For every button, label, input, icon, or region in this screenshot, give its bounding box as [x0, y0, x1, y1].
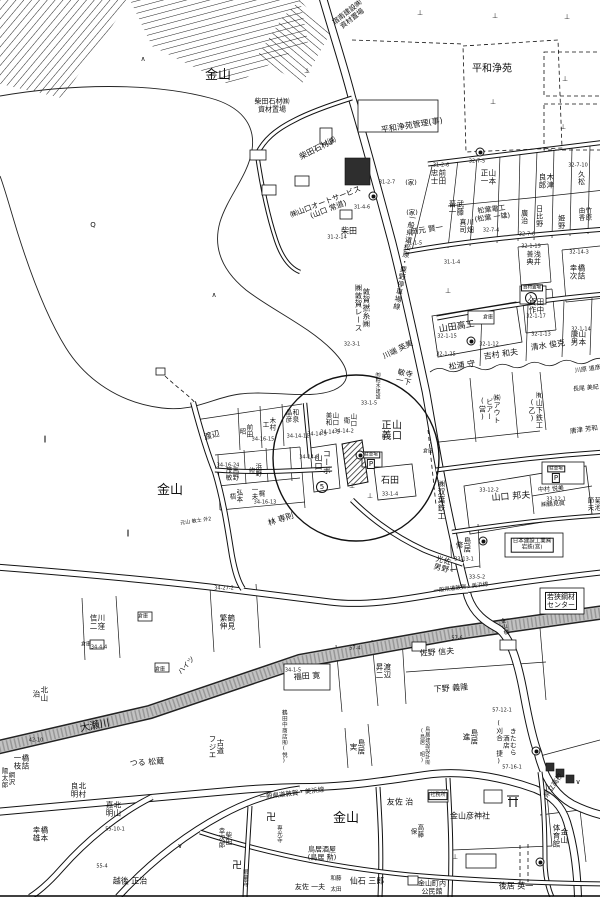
entrance-icon: 入	[525, 292, 537, 304]
map-label: つる 松蔵	[129, 757, 164, 768]
parcel-number: 34-1-5	[285, 668, 301, 673]
map-label: 島居 実	[349, 739, 365, 755]
map-label: 松浦 守	[448, 360, 475, 372]
map-label: 寺下 敏一	[395, 368, 414, 387]
route-marker-icon	[356, 451, 365, 460]
map-label: 高藤 保	[409, 824, 423, 838]
map-label: 後居 英一	[499, 883, 534, 892]
route-marker-icon	[479, 537, 488, 546]
parcel-number: 32-1-17	[526, 314, 546, 319]
map-symbol: ⊥	[445, 288, 451, 296]
map-label: 山口 美和	[324, 412, 338, 426]
map-label: 橋詰 一枝	[13, 754, 29, 770]
parcel-number: 33-12-1	[546, 497, 566, 502]
map-label: 日本建設工業㈱ 岩鉄(営)	[511, 538, 554, 553]
map-label: ㈱双葉鉄工	[437, 480, 445, 520]
map-label: ㈲柏木建設	[374, 372, 379, 400]
map-label: 大瀬川	[79, 719, 111, 735]
parcel-number: 34-16-13	[254, 500, 277, 505]
map-label: 清水 俊克	[530, 339, 565, 352]
parcel-number: 34-14-11	[287, 434, 310, 439]
parcel-number: 32-1-12	[479, 342, 499, 347]
temple-icon: 卍	[266, 814, 276, 825]
map-label: 菊池 節夫	[586, 497, 600, 511]
parcel-number: 31-4-6	[354, 205, 370, 210]
map-label: 前田 昭	[238, 424, 252, 438]
map-label: 倉庫	[155, 667, 165, 672]
map-label: 唐津 芳和	[570, 425, 599, 435]
parcel-number: 32-3-1	[344, 342, 360, 347]
map-symbol: ⊥	[492, 13, 498, 21]
map-label: 石田	[381, 477, 399, 487]
parcel-number: 31-1-4	[444, 260, 460, 265]
map-label: 網沢 陽太郎	[0, 768, 14, 789]
map-label: 日比野	[535, 205, 542, 228]
map-label: 弘本 梧	[228, 489, 242, 503]
map-label: 鶴田中商店㈲(悦)	[280, 710, 286, 765]
map-label: 吉村 和夫	[483, 348, 518, 361]
map-symbol: ⊥	[304, 68, 310, 76]
map-label: 梶 一夫	[250, 486, 264, 500]
map-symbol: ⊥	[349, 483, 355, 491]
map-label: 前田 忠士	[430, 169, 446, 185]
map-label: 姫野	[557, 215, 564, 230]
map-label: 島居 進	[462, 729, 478, 745]
map-symbol: ∨	[177, 843, 182, 851]
temple-icon: 卍	[232, 862, 242, 873]
map-label: ㈱アウト ビアー (営)	[478, 394, 500, 424]
parcel-number: 34-4-4	[91, 645, 107, 650]
map-label: 川窪 信二	[89, 614, 105, 630]
parcel-number: 55-4	[96, 864, 107, 869]
map-label: 敦賀撚糸㈱ ㈱敦賀レース	[354, 284, 370, 332]
map-label: 北村 良明	[70, 782, 86, 798]
parcel-number: 32-1-25	[436, 352, 456, 357]
map-symbol: ⊥	[564, 14, 570, 22]
map-label: 柴田 幸次郎	[217, 828, 231, 849]
map-label: コーポ 山口	[314, 449, 331, 475]
map-symbol: ∥	[126, 530, 130, 538]
map-label: 仙石 三郎	[350, 878, 385, 887]
parcel-number: 32-1-19	[521, 244, 541, 249]
map-symbol: ⊥	[367, 493, 373, 501]
route-marker-icon	[369, 192, 378, 201]
map-label: (家)	[405, 179, 417, 186]
parcel-number: 57-16-1	[502, 765, 522, 770]
map-canvas: 宿南建設㈱ 資材置場金山平和浄苑平和浄苑管理(事)柴田石材㈱ 資材置場柴田石材㈱…	[0, 0, 600, 897]
map-label: 橋本 幸雄	[32, 826, 48, 842]
route-marker-icon	[536, 858, 545, 867]
parcel-number: 33-12-2	[479, 488, 499, 493]
map-label: 廣治	[520, 210, 527, 225]
parcel-number: 32-1-14	[571, 327, 591, 332]
map-label: ハイツ	[177, 656, 197, 677]
map-label: 浅井 善典	[526, 251, 541, 266]
map-label: 駐車場	[362, 451, 380, 458]
map-label: 和藤	[330, 877, 341, 883]
map-symbol: ⊥	[560, 124, 566, 132]
parcel-number: 34-16-24	[217, 463, 240, 468]
route-marker-icon	[476, 148, 485, 157]
map-symbol: ⊥	[417, 10, 423, 18]
route-marker-icon	[467, 337, 476, 346]
map-symbol: Q	[90, 222, 96, 230]
parcel-number: 34-16-15	[252, 437, 275, 442]
parking-icon: P	[552, 473, 560, 483]
map-label: 平和浄苑管理(事)	[381, 117, 444, 135]
map-label: 和泉 晶彦	[284, 409, 298, 423]
map-label: 川端 英美	[382, 339, 415, 360]
map-label: 金山 体育館	[552, 824, 568, 848]
map-label: 山口 衛	[342, 413, 356, 427]
map-label: 資材置場	[521, 284, 543, 291]
map-symbol: ⊥	[452, 854, 458, 862]
map-label: 竹原 由香	[577, 207, 591, 221]
map-symbol: ∧	[211, 292, 216, 300]
map-label: 金山	[205, 69, 231, 83]
map-label: 下野 義隆	[433, 683, 468, 694]
parcel-number: 34-14-2	[334, 429, 354, 434]
map-label: 川畑 真司	[459, 219, 474, 234]
parcel-number: 32-1-15	[437, 334, 457, 339]
map-label: 元山 敏士 外2	[180, 517, 212, 527]
map-label: 友佐 治	[387, 799, 414, 808]
map-label: 駐車場	[547, 465, 565, 472]
parcel-number: 32-7-4	[483, 228, 499, 233]
map-label: 宿南建設㈱ 資材置場	[332, 0, 369, 33]
parcel-number: 57-6	[451, 636, 462, 641]
map-label: 社務所	[428, 792, 447, 800]
map-label: 木津 良郎	[538, 173, 554, 189]
map-label: きたむら 酒店 (刈合 捷)	[495, 719, 515, 766]
parcel-number: 33-1-4	[382, 492, 398, 497]
parcel-number: 31-2-7	[379, 180, 395, 185]
parcel-number: 31-2-6	[433, 163, 449, 168]
parcel-number: 31-1-5	[406, 241, 422, 246]
map-label: 岡元 賢一	[410, 223, 443, 236]
parcel-number: 32-7-10	[568, 163, 588, 168]
parcel-number: 57-4	[349, 646, 360, 651]
map-symbol: 5	[316, 481, 328, 493]
parcel-number: 42-10	[29, 738, 44, 743]
parcel-number: 33-5-2	[469, 575, 485, 580]
map-label: 倉庫	[138, 614, 148, 619]
map-label: 山口 正義	[379, 420, 400, 441]
map-symbol: ⊥	[490, 99, 496, 107]
parcel-number: 34-27-2	[214, 586, 234, 591]
parcel-number: 32-1-13	[531, 332, 551, 337]
map-label: 越後 正治	[113, 878, 148, 887]
map-label: 佐野 信夫	[419, 647, 454, 658]
parcel-number: 55-10-1	[105, 827, 125, 832]
map-symbol: ∨	[575, 779, 580, 787]
map-label: 金山	[157, 484, 183, 498]
parking-icon: P	[367, 459, 375, 469]
map-label: 倉庫	[483, 315, 493, 320]
map-label: (家)	[406, 209, 418, 216]
map-label: 島居 修	[455, 537, 471, 553]
map-label: 柴田石材㈱	[298, 136, 338, 162]
map-label: 鶴見 繁伸	[219, 614, 235, 630]
parcel-number: 32-14-3	[569, 250, 589, 255]
map-label: 若狭鋼材 センター	[545, 592, 577, 610]
map-label: 太田	[330, 888, 341, 894]
map-label: 橋詰 幸次	[569, 264, 585, 280]
map-symbol: ⊥	[562, 76, 568, 84]
map-label: 倉庫	[81, 642, 91, 647]
map-label: 渡辺 昇二	[375, 663, 391, 679]
map-label: 一般県道敦賀・美浜線	[259, 787, 324, 802]
map-label: ㈲山下鉄工 (乙)	[528, 391, 543, 429]
map-label: 専光寺	[275, 825, 281, 843]
route-marker-icon	[532, 747, 541, 756]
map-label: 友佐 一夫	[295, 884, 325, 892]
map-label: 川原 道彦	[575, 365, 600, 375]
parcel-number: 34-14-8	[299, 455, 319, 460]
map-label: 林 専則	[267, 512, 295, 528]
map-label: 鳥居酒屋 (鳥居 勲)	[308, 846, 337, 861]
map-label: 山本 正一	[480, 169, 496, 185]
parcel-number: 33-1-5	[361, 401, 377, 406]
parcel-number: 32-7-5	[469, 159, 485, 164]
map-label: 金山橋	[498, 618, 508, 637]
map-label: 北山 治	[32, 686, 48, 702]
map-label: 古道 フジエ	[208, 735, 224, 759]
map-label: 県立高校	[543, 772, 565, 799]
map-label: 金山	[333, 812, 359, 826]
map-label: 平和浄苑	[472, 65, 512, 76]
map-label: 浜野 修	[247, 463, 261, 477]
map-symbol: ∥	[43, 436, 47, 444]
map-label: 北山 嘉明	[105, 801, 121, 817]
map-labels-layer: 宿南建設㈱ 資材置場金山平和浄苑平和浄苑管理(事)柴田石材㈱ 資材置場柴田石材㈱…	[0, 0, 600, 897]
map-label: 中村 悦美	[538, 486, 564, 494]
parcel-number: 31-2-14	[327, 235, 347, 240]
map-label: 久松	[577, 171, 584, 186]
map-label: 鳥居建設設計㈲ (鳥居 昭)	[419, 727, 430, 766]
map-label: 馬野 茂敏	[224, 467, 238, 481]
map-label: 金山彦神社	[450, 813, 490, 822]
map-label: 倉庫	[423, 449, 433, 454]
map-label: 長尾 美紀	[573, 385, 599, 394]
parcel-number: 57-12-1	[492, 708, 512, 713]
map-symbol: ∧	[140, 56, 145, 64]
map-label: 佐野 光男	[432, 554, 451, 574]
map-label: 金山町内 公民館	[418, 880, 446, 895]
map-label: 渡辺	[203, 430, 221, 442]
map-label: 一般県道敦賀・美浜線	[433, 583, 488, 596]
map-label: 松葉電工 (松葉 一雄)	[473, 204, 510, 223]
map-label: 柴田石材㈱ 資材置場	[255, 98, 290, 113]
map-label: 武藤 晋一	[448, 200, 464, 216]
map-label: 木村 工	[261, 417, 275, 431]
parcel-number: 32-7-6	[519, 232, 535, 237]
parcel-number: 33-13-1	[454, 557, 474, 562]
